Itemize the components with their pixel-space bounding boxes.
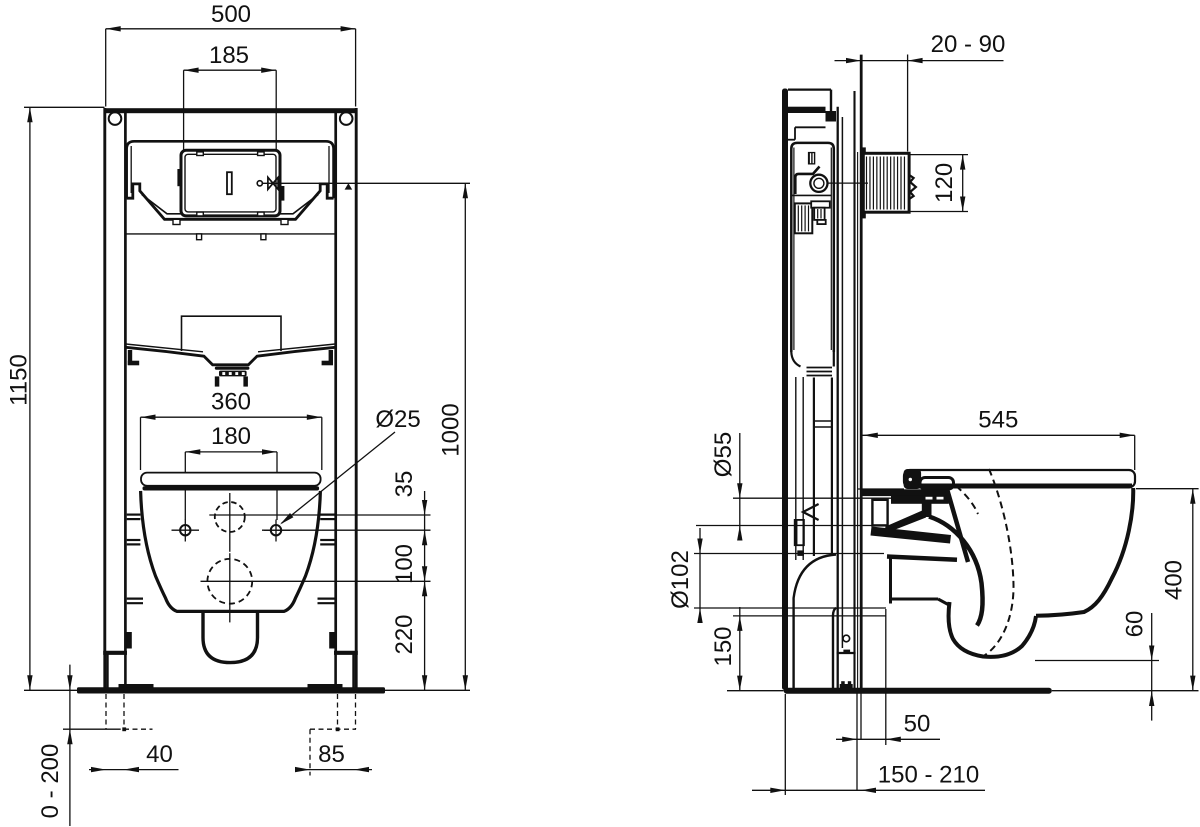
svg-text:50: 50: [904, 711, 931, 738]
svg-text:85: 85: [318, 741, 345, 768]
svg-text:100: 100: [391, 544, 418, 584]
svg-text:400: 400: [1160, 560, 1187, 600]
svg-text:1150: 1150: [6, 354, 33, 406]
svg-text:20 - 90: 20 - 90: [931, 31, 1006, 58]
svg-text:40: 40: [146, 741, 173, 768]
svg-text:360: 360: [211, 389, 251, 416]
svg-text:0 - 200: 0 - 200: [37, 744, 64, 819]
svg-text:Ø25: Ø25: [375, 406, 420, 433]
svg-text:500: 500: [211, 1, 251, 28]
svg-text:185: 185: [209, 42, 249, 69]
svg-text:60: 60: [1121, 611, 1148, 638]
svg-text:1000: 1000: [438, 403, 465, 456]
svg-text:Ø102: Ø102: [667, 550, 694, 609]
svg-text:545: 545: [978, 407, 1018, 434]
svg-text:Ø55: Ø55: [710, 432, 737, 477]
svg-text:150: 150: [710, 626, 737, 666]
svg-text:35: 35: [391, 471, 418, 498]
svg-text:220: 220: [391, 614, 418, 654]
svg-text:150 - 210: 150 - 210: [878, 762, 979, 789]
svg-text:120: 120: [931, 163, 958, 203]
svg-text:180: 180: [211, 423, 251, 450]
